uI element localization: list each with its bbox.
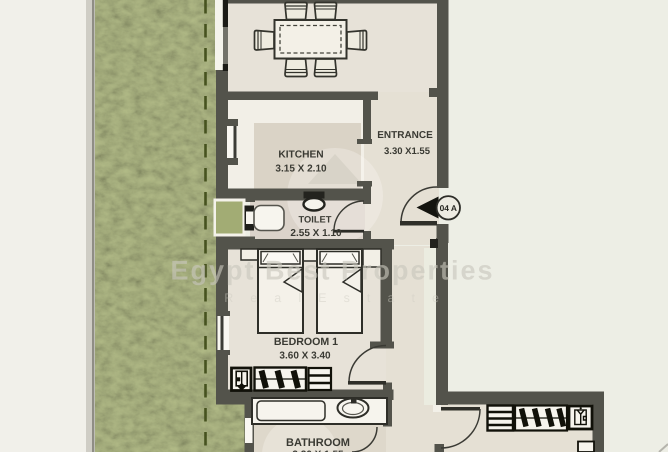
svg-text:04 A: 04 A	[440, 203, 457, 213]
svg-text:3.30 X1.55: 3.30 X1.55	[384, 146, 431, 157]
svg-text:R e a l E s t a t e: R e a l E s t a t e	[224, 291, 446, 305]
svg-text:BEDROOM 1: BEDROOM 1	[274, 336, 338, 348]
svg-text:2.55 X 1.10: 2.55 X 1.10	[290, 228, 342, 239]
svg-text:BATHROOM: BATHROOM	[286, 437, 350, 449]
svg-text:KITCHEN: KITCHEN	[278, 150, 323, 161]
svg-text:3.60 X 3.40: 3.60 X 3.40	[279, 351, 331, 362]
svg-text:TOILET: TOILET	[299, 215, 332, 225]
svg-text:Egypt Best Properties: Egypt Best Properties	[170, 256, 494, 286]
svg-text:3.15 X 2.10: 3.15 X 2.10	[275, 164, 327, 175]
svg-text:ENTRANCE: ENTRANCE	[377, 130, 433, 141]
